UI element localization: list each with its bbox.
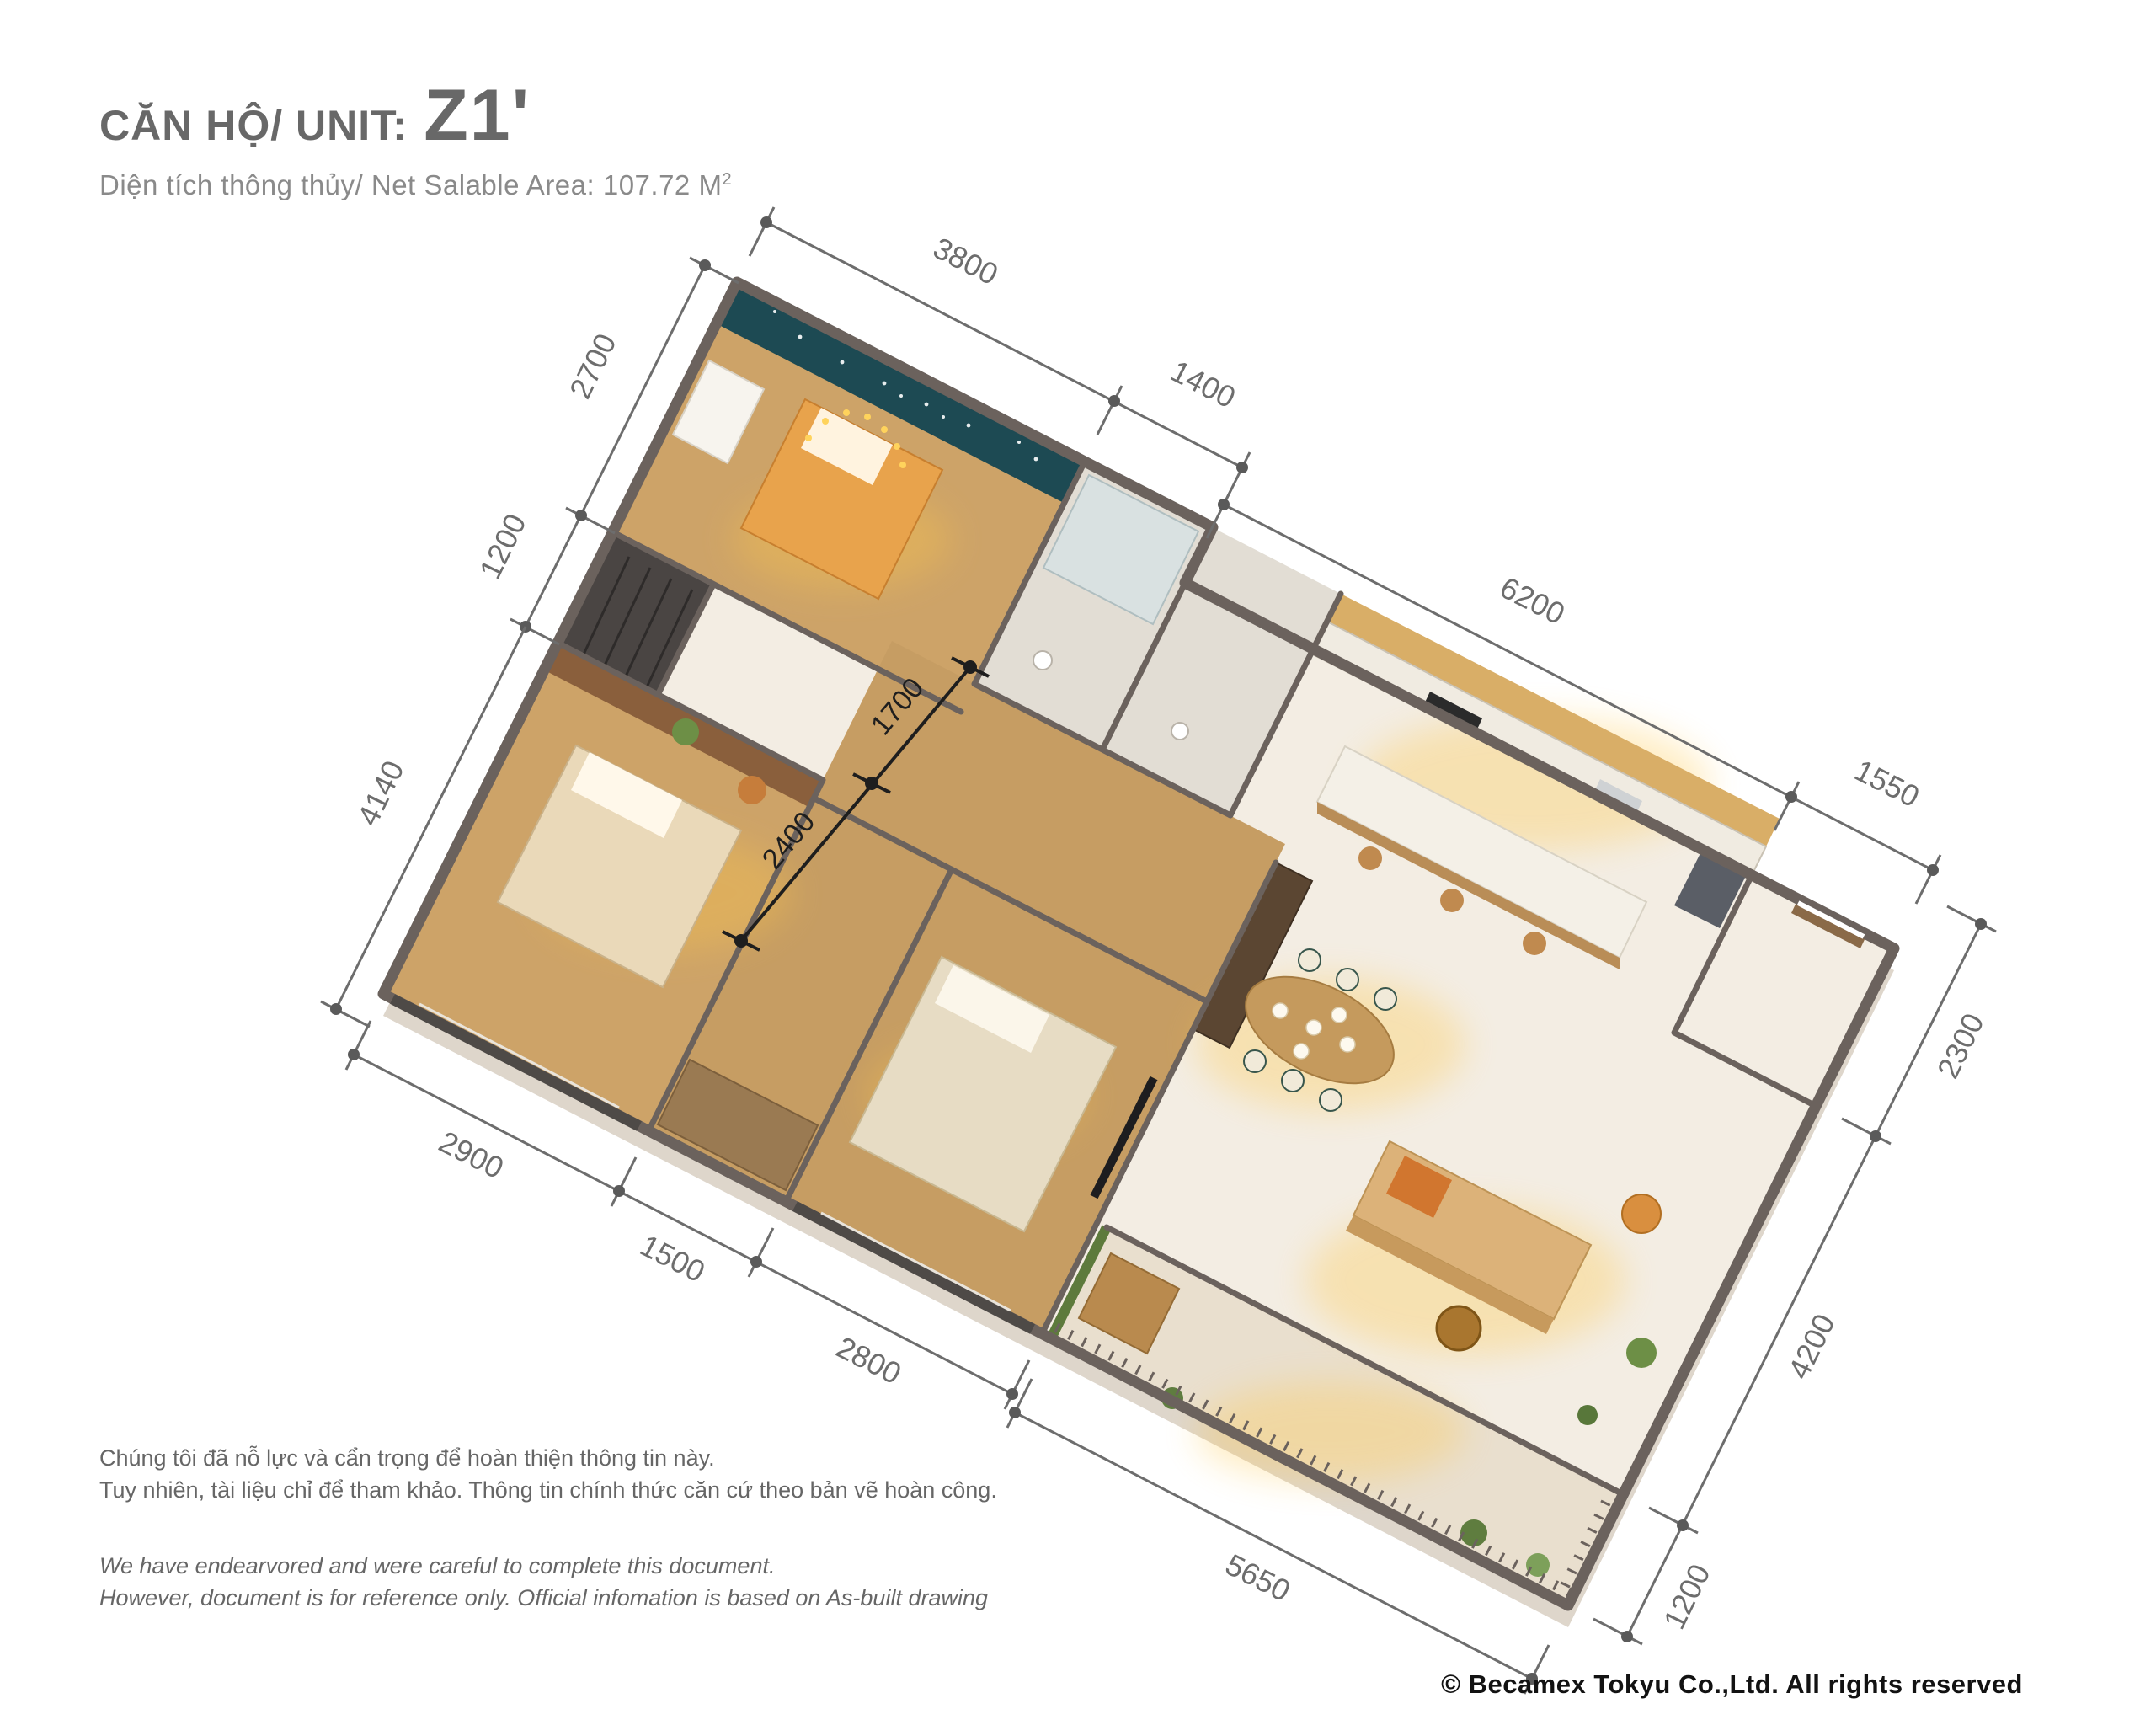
dim-label-4200: 4200 — [1781, 1309, 1842, 1385]
disclaimer-en-line1: We have endearvored and were careful to … — [99, 1550, 997, 1582]
coffee-table — [1437, 1306, 1481, 1350]
dim-label-2700: 2700 — [563, 328, 623, 404]
disclaimer-block: Chúng tôi đã nỗ lực và cẩn trọng để hoàn… — [99, 1442, 997, 1614]
disclaimer-vietnamese: Chúng tôi đã nỗ lực và cẩn trọng để hoàn… — [99, 1442, 997, 1506]
master-armchair — [738, 776, 766, 804]
master-plant — [672, 718, 699, 745]
bar-stool — [1440, 889, 1464, 912]
bar-stool — [1523, 932, 1546, 955]
bathroom-sink — [1171, 723, 1188, 740]
disclaimer-english: We have endearvored and were careful to … — [99, 1550, 997, 1614]
dim-label-2300: 2300 — [1930, 1008, 1991, 1084]
dim-label-1400: 1400 — [1166, 353, 1241, 414]
bar-stool — [1358, 846, 1382, 870]
living-plant-small — [1577, 1405, 1598, 1425]
disclaimer-en-line2: However, document is for reference only.… — [99, 1582, 997, 1614]
dim-label-2800: 2800 — [831, 1329, 907, 1391]
dim-label-1550: 1550 — [1849, 752, 1925, 814]
dim-label-1200-e: 1200 — [1657, 1559, 1717, 1635]
dim-label-1500: 1500 — [635, 1227, 711, 1289]
dim-label-3800: 3800 — [928, 230, 1004, 291]
dim-label-2900: 2900 — [434, 1124, 510, 1185]
disclaimer-vi-line2: Tuy nhiên, tài liệu chỉ để tham khảo. Th… — [99, 1474, 997, 1506]
balcony-plant — [1526, 1553, 1550, 1577]
copyright-notice: © Becamex Tokyu Co.,Ltd. All rights rese… — [1441, 1669, 2023, 1700]
dim-label-4140: 4140 — [350, 756, 411, 831]
living-plant — [1626, 1338, 1657, 1368]
toilet — [1033, 651, 1052, 670]
dim-label-6200: 6200 — [1495, 569, 1571, 631]
disclaimer-vi-line1: Chúng tôi đã nỗ lực và cẩn trọng để hoàn… — [99, 1442, 997, 1474]
floorplan-page: CĂN HỘ/ UNIT: Z1' Diện tích thông thủy/ … — [0, 0, 2156, 1725]
dim-label-1200-nw: 1200 — [472, 509, 533, 585]
dim-label-5650: 5650 — [1220, 1546, 1296, 1608]
living-armchair — [1622, 1194, 1661, 1233]
